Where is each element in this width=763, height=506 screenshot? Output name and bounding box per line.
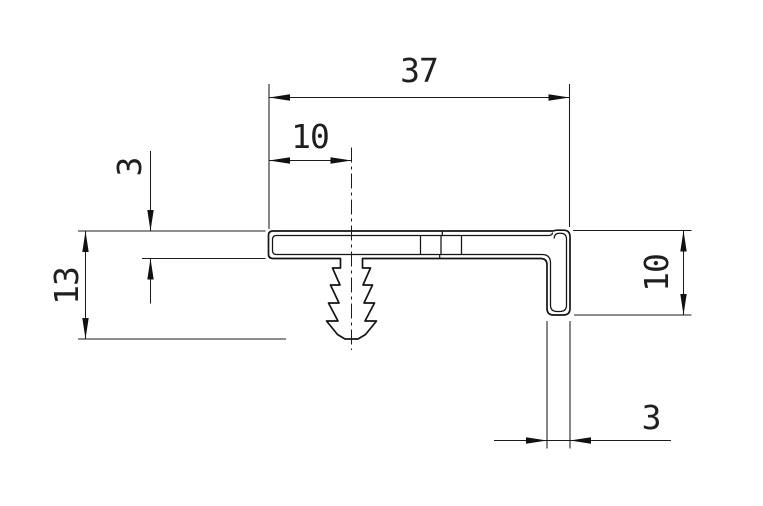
technical-drawing-canvas: 37 10 3 13 10 3 xyxy=(0,0,763,506)
arrow-height-top xyxy=(82,231,88,252)
arrow-thickness-top xyxy=(147,210,153,231)
dim-label-end-leg-height: 10 xyxy=(637,254,676,292)
extension-lines xyxy=(78,84,692,449)
arrowheads xyxy=(82,94,686,444)
dim-label-end-leg-thickness: 3 xyxy=(642,398,661,437)
arrow-height-bottom xyxy=(82,318,88,339)
dim-label-overall-width: 37 xyxy=(400,51,438,90)
dim-label-anchor-offset: 10 xyxy=(291,117,329,156)
arrow-offset-right xyxy=(331,157,352,164)
profile-outline xyxy=(269,230,571,339)
dim-label-overall-height: 13 xyxy=(47,267,86,305)
dim-label-flange-thickness: 3 xyxy=(110,158,149,177)
arrow-leg-height-top xyxy=(680,231,686,252)
arrow-leg-thickness-left xyxy=(526,437,547,443)
arrow-leg-height-bottom xyxy=(680,294,686,315)
profile-drawing-svg: 37 10 3 13 10 3 xyxy=(0,0,763,506)
arrow-offset-left xyxy=(269,157,290,164)
arrow-leg-thickness-right xyxy=(570,437,591,443)
arrow-width-left xyxy=(269,94,290,101)
dimension-lines xyxy=(86,98,684,441)
arrow-width-right xyxy=(549,94,570,101)
arrow-thickness-bottom xyxy=(147,259,153,280)
